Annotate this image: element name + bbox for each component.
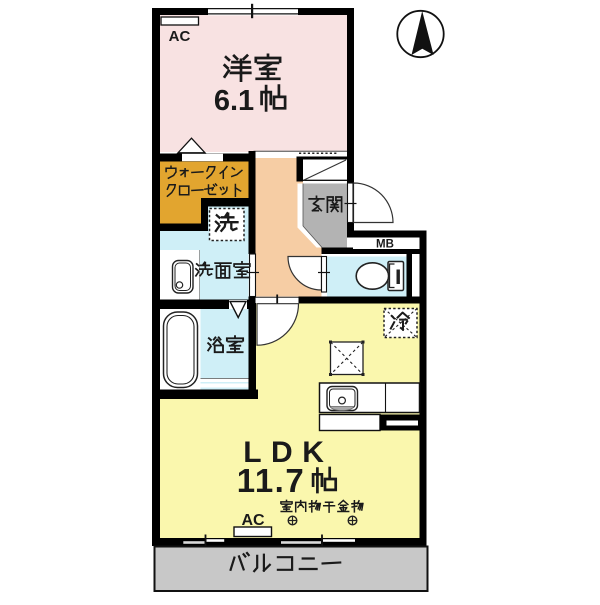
svg-text:6.1: 6.1: [214, 85, 254, 117]
svg-text:11.7: 11.7: [237, 462, 305, 499]
svg-text:MB: MB: [376, 239, 394, 251]
svg-text:AC: AC: [169, 28, 191, 45]
